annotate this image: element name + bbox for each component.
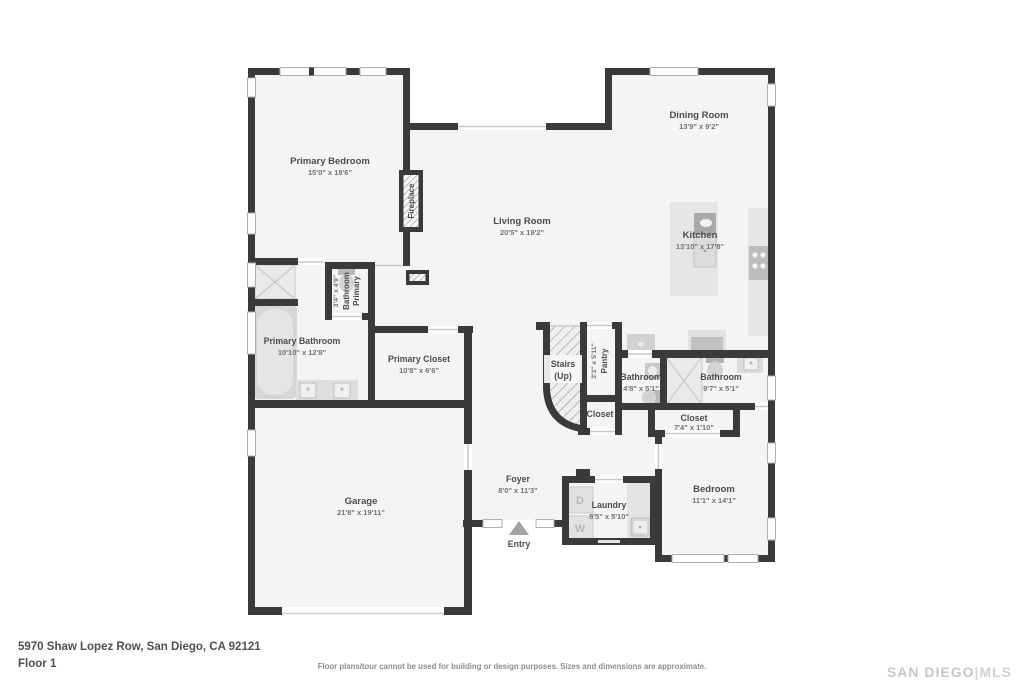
svg-text:Dining Room: Dining Room [669,110,728,121]
svg-text:21'8" x 19'11": 21'8" x 19'11" [337,508,385,517]
svg-text:10'8" x 6'6": 10'8" x 6'6" [399,366,439,375]
label-kitchen: Kitchen 13'10" x 17'8" [676,230,725,251]
svg-text:11'1" x 14'1": 11'1" x 14'1" [692,496,736,505]
svg-text:13'10" x 17'8": 13'10" x 17'8" [676,242,725,251]
svg-text:20'5" x 19'2": 20'5" x 19'2" [500,228,544,237]
svg-text:9'7" x 5'1": 9'7" x 5'1" [703,384,739,393]
svg-text:(Up): (Up) [554,371,572,381]
label-stairs-closet: Closet [587,409,614,419]
svg-text:Foyer: Foyer [506,474,531,484]
floor-plan-canvas: « [0,0,1024,683]
entry-label: Entry [508,539,531,549]
svg-text:Pantry: Pantry [600,348,609,373]
mls-logo: SAN DIEGO|MLS [887,664,1012,680]
svg-text:Bathroom: Bathroom [342,272,351,310]
label-bedroom: Bedroom 11'1" x 14'1" [692,484,736,505]
svg-text:13'9" x 9'2": 13'9" x 9'2" [679,122,719,131]
floor-plan-page: « [0,0,1024,683]
vent-niche [406,270,429,285]
svg-text:Bathroom: Bathroom [620,372,662,382]
svg-text:Bathroom: Bathroom [700,372,742,382]
range-icon [688,330,726,353]
svg-text:3'4" x 4'9": 3'4" x 4'9" [333,275,340,307]
svg-text:Garage: Garage [345,496,378,507]
svg-text:Laundry: Laundry [592,500,627,510]
svg-text:Kitchen: Kitchen [683,230,718,241]
svg-text:Primary: Primary [352,276,361,306]
svg-text:Bedroom: Bedroom [693,484,735,495]
svg-text:Primary Closet: Primary Closet [388,354,450,364]
large-bath-shower-icon [666,357,702,405]
svg-text:Primary Bathroom: Primary Bathroom [264,336,341,346]
cooktop-icon [749,246,768,280]
vanity-sinks-icon [296,380,358,400]
svg-text:10'10" x 12'8": 10'10" x 12'8" [278,348,327,357]
svg-text:8'0" x 11'3": 8'0" x 11'3" [498,486,538,495]
svg-text:7'4" x 1'10": 7'4" x 1'10" [674,423,714,432]
svg-text:Stairs: Stairs [551,359,576,369]
svg-text:Primary Bedroom: Primary Bedroom [290,156,370,167]
fireplace: Fireplace [399,170,423,232]
svg-text:15'0" x 18'6": 15'0" x 18'6" [308,168,352,177]
fridge-glyph: « [638,339,644,350]
svg-text:Closet: Closet [587,409,614,419]
disclaimer-text: Floor plans/tour cannot be used for buil… [318,662,707,671]
large-bath-sink-icon [737,356,763,373]
shower-icon [255,265,295,299]
laundry-sink-icon [627,483,650,538]
svg-text:3'3" x 5'11": 3'3" x 5'11" [591,343,598,379]
label-stairs: Stairs (Up) [544,355,582,383]
svg-text:4'8" x 5'1": 4'8" x 5'1" [623,384,659,393]
svg-text:Living Room: Living Room [493,216,551,227]
label-primary-water-closet: Primary Bathroom 3'4" x 4'9" [333,272,361,310]
address-text: 5970 Shaw Lopez Row, San Diego, CA 92121 [18,641,261,653]
washer-letter: W [575,523,586,535]
svg-text:Closet: Closet [681,413,708,423]
svg-text:8'5" x 5'10": 8'5" x 5'10" [589,512,629,521]
label-living-room: Living Room 20'5" x 19'2" [493,216,551,237]
floor-label: Floor 1 [18,658,57,670]
dryer-icon: D [567,487,593,513]
dryer-letter: D [576,495,584,507]
fireplace-label: Fireplace [407,183,416,219]
